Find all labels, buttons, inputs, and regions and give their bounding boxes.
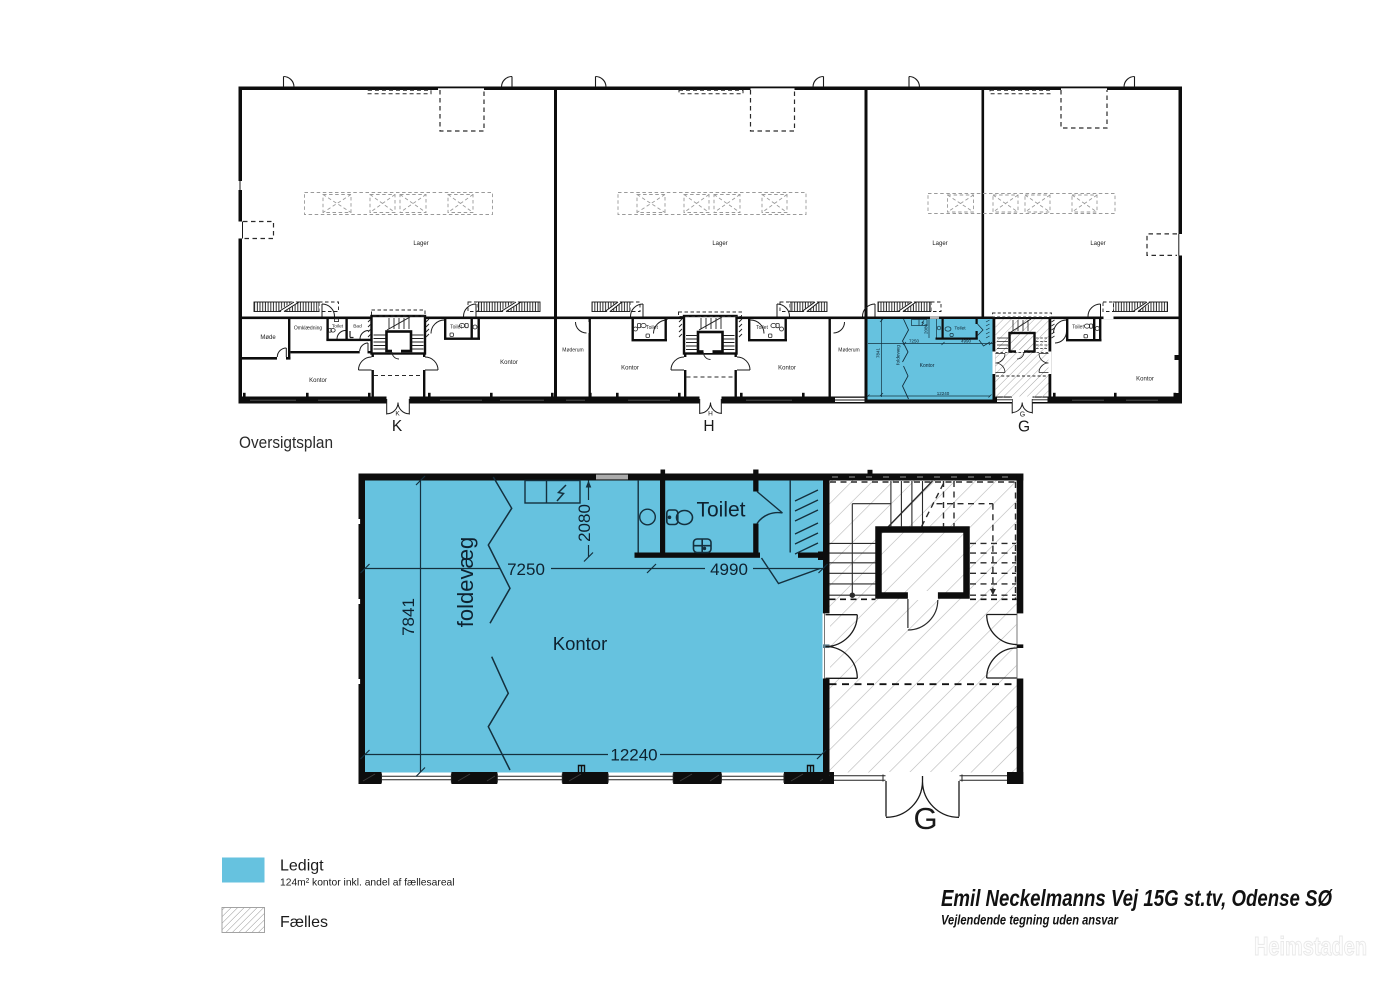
svg-text:12240: 12240 <box>937 391 950 396</box>
svg-text:Kontor: Kontor <box>621 366 639 372</box>
svg-text:Omklædning: Omklædning <box>294 326 323 332</box>
svg-text:Lager: Lager <box>932 241 947 247</box>
svg-text:G: G <box>913 801 937 836</box>
svg-text:K: K <box>395 411 400 418</box>
svg-text:G: G <box>1020 412 1025 419</box>
svg-text:foldevæg: foldevæg <box>896 345 902 365</box>
svg-text:Toilet: Toilet <box>756 325 768 331</box>
svg-text:7250: 7250 <box>507 560 545 579</box>
svg-text:foldevæg: foldevæg <box>453 537 478 628</box>
svg-text:Lager: Lager <box>1090 241 1105 247</box>
svg-text:Toilet: Toilet <box>954 326 966 332</box>
svg-text:Kontor: Kontor <box>778 366 796 372</box>
svg-text:Vejlendende tegning uden ansva: Vejlendende tegning uden ansvar <box>941 913 1119 928</box>
svg-text:Lager: Lager <box>712 241 727 247</box>
svg-text:H: H <box>708 411 713 418</box>
svg-text:Lager: Lager <box>413 241 428 247</box>
svg-text:K: K <box>392 418 403 435</box>
svg-text:Møderum: Møderum <box>562 348 583 354</box>
svg-text:2080: 2080 <box>575 504 594 542</box>
svg-text:Kontor: Kontor <box>920 363 935 369</box>
svg-text:12240: 12240 <box>610 746 657 765</box>
svg-text:Emil Neckelmanns Vej 15G st.tv: Emil Neckelmanns Vej 15G st.tv, Odense S… <box>941 885 1333 911</box>
svg-text:2080: 2080 <box>924 323 929 334</box>
svg-text:Kontor: Kontor <box>500 360 518 366</box>
svg-text:Møde: Møde <box>260 335 276 341</box>
svg-text:4990: 4990 <box>710 560 748 579</box>
svg-text:Møderum: Møderum <box>838 348 859 354</box>
svg-text:Fælles: Fælles <box>280 914 328 931</box>
svg-text:Bad: Bad <box>353 324 362 330</box>
svg-text:Heimstaden: Heimstaden <box>1254 931 1367 961</box>
svg-text:Toilet: Toilet <box>696 499 745 522</box>
svg-text:Kontor: Kontor <box>1136 377 1154 383</box>
svg-text:Ledigt: Ledigt <box>280 858 324 875</box>
svg-text:7250: 7250 <box>909 339 920 344</box>
svg-text:Kontor: Kontor <box>553 633 608 654</box>
svg-text:124m² kontor inkl. andel af fæ: 124m² kontor inkl. andel af fællesareal <box>280 878 455 889</box>
svg-text:Kontor: Kontor <box>309 378 327 384</box>
svg-text:Oversigtsplan: Oversigtsplan <box>239 433 333 452</box>
svg-text:7841: 7841 <box>399 598 418 636</box>
svg-text:Toilet: Toilet <box>646 325 658 331</box>
svg-text:4990: 4990 <box>961 339 972 344</box>
svg-text:G: G <box>1018 419 1030 436</box>
svg-text:H: H <box>703 418 714 435</box>
svg-text:7841: 7841 <box>876 347 881 358</box>
svg-text:Toilet: Toilet <box>1072 325 1084 331</box>
